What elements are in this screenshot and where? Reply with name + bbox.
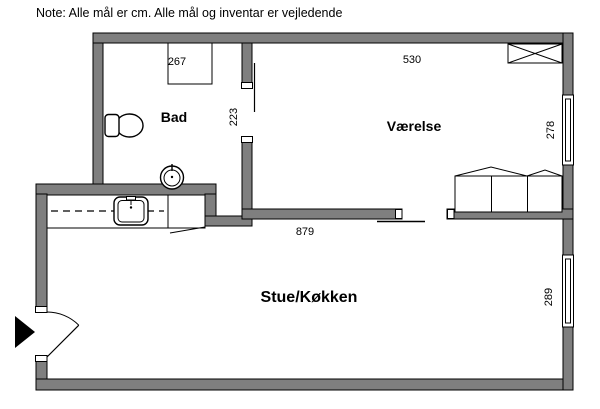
floorplan-canvas: Note: Alle mål er cm. Alle mål og invent… [0,0,600,409]
kitchen-counter [47,195,205,233]
toilet-bowl-icon [116,114,143,137]
wardrobe-row-icon [455,176,562,212]
window-frame [563,95,574,165]
entrance-door [15,307,79,362]
dim-223: 223 [228,108,240,126]
entrance-arrow-icon [15,316,35,348]
wall-cap [448,210,455,219]
wall-left-upper [36,194,47,308]
window-stue [563,255,574,327]
door-jamb [36,356,48,362]
dim-278: 278 [545,121,557,139]
wall-right-top [563,33,573,95]
stue-koekken-room-label: Stue/Køkken [261,289,358,306]
wardrobe-door-swing [455,167,527,176]
dim-267: 267 [168,56,186,68]
vaerelse-room-label: Værelse [387,118,442,134]
wall-bad-east-upper [242,43,252,83]
wall-bath-bottom [36,184,216,195]
sink-tap-icon [127,197,136,201]
bad-room-label: Bad [161,109,187,125]
wall-cap [242,83,253,89]
wall-cap [242,137,253,143]
floorplan-drawing: Bad Værelse Stue/Køkken 267 530 879 223 … [0,0,600,409]
sink-drain [130,206,132,208]
window-frame [563,255,574,327]
basin-drain [171,176,173,178]
wardrobe-door-swing [527,170,562,176]
dim-530: 530 [403,54,421,66]
window-vaerelse [563,95,574,165]
wall-bath-left [93,43,103,184]
door-jamb [36,307,48,313]
door-opening [35,307,48,361]
dim-289: 289 [543,288,555,306]
wall-cap [396,210,403,219]
toilet-cistern-icon [105,115,119,137]
door-swing-arc [47,312,79,325]
wall-right-bottom [563,327,573,390]
door-leaf [47,325,79,357]
wall-bottom [36,379,573,390]
dim-879: 879 [296,226,314,238]
wall-top [93,33,573,43]
bathroom-fixtures [105,43,212,189]
wall-stue-divider [242,209,402,219]
